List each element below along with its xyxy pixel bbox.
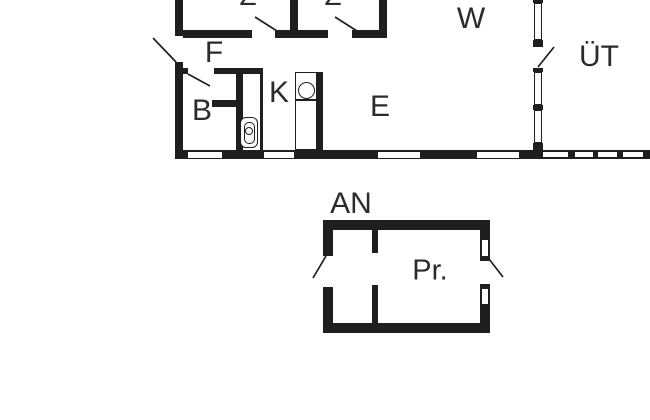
room-label-b: B — [192, 96, 212, 126]
door-swing-ut — [538, 47, 554, 67]
room-label-f: F — [205, 38, 223, 68]
wall-z-row-2 — [275, 30, 328, 38]
door-swing-b — [188, 74, 210, 86]
wall-k-e — [317, 72, 323, 150]
terrace-wall-post-2 — [593, 150, 598, 159]
annex-window-1 — [481, 239, 489, 257]
wall-b-stub — [212, 100, 236, 107]
terrace-wall-post-4 — [643, 150, 650, 159]
window-bottom-1 — [188, 152, 222, 158]
door-swing-z2 — [335, 17, 357, 31]
annex-divider-upper — [372, 230, 378, 253]
window-bottom-4 — [477, 152, 519, 158]
wall-left-lower — [175, 62, 183, 159]
annex-door-right — [480, 261, 490, 284]
door-swing-lines — [0, 0, 650, 420]
wall-left-upper — [175, 0, 183, 36]
room-label-ut: ÜT — [579, 42, 619, 72]
room-label-e: E — [370, 92, 390, 122]
wall-ut-5 — [533, 143, 543, 150]
wall-wc-thin — [260, 68, 263, 150]
terrace-wall-post-1 — [568, 150, 575, 159]
stove-circle-icon — [298, 82, 315, 99]
window-ut-3 — [534, 110, 542, 143]
door-swing-entry — [153, 38, 176, 62]
window-ut-1 — [534, 3, 542, 40]
room-label-pr: Pr. — [412, 257, 447, 286]
chimney-divider — [295, 99, 317, 101]
door-swing-annex-right — [489, 259, 503, 277]
wall-z-right — [379, 0, 387, 38]
wall-f-row-1 — [175, 68, 188, 74]
toilet-flush-icon — [245, 127, 253, 135]
terrace-wall-post-3 — [617, 150, 623, 159]
window-bottom-2 — [264, 152, 294, 158]
room-label-w: W — [457, 4, 485, 34]
window-ut-2 — [534, 72, 542, 105]
room-label-z2: Z — [324, 0, 341, 10]
wall-ut-2 — [533, 40, 543, 47]
annex-window-2 — [481, 288, 489, 305]
window-bottom-3 — [378, 152, 420, 158]
annex-door-left — [323, 256, 333, 287]
floor-plan-drawing: Z Z F B K E W ÜT AN Pr. — [0, 0, 650, 420]
annex-divider-lower — [372, 285, 378, 323]
annex-outer-wall — [323, 220, 490, 333]
door-swing-z1 — [255, 17, 277, 31]
room-label-k: K — [269, 78, 289, 108]
wall-z-divider — [290, 0, 298, 38]
annex-title: AN — [330, 189, 372, 219]
room-label-z1: Z — [239, 0, 256, 10]
